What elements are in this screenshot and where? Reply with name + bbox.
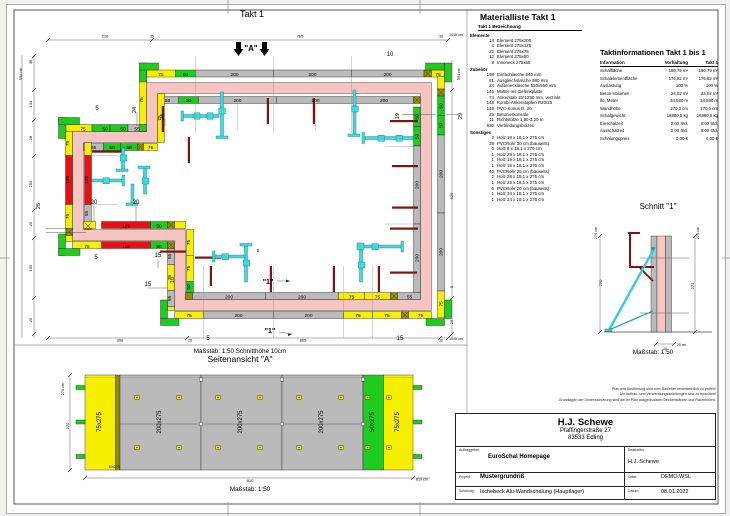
svg-label: 270 — [65, 422, 70, 429]
company-name: H.J. Schewe — [456, 417, 715, 428]
table-row: Schalelementfläche176,82 m²176,82 m² — [600, 75, 718, 83]
svg-label: 810 — [247, 478, 254, 483]
svg-label: 200 — [311, 98, 319, 104]
svg-label: 810 cm — [416, 478, 428, 482]
svg-label: 50 — [109, 145, 115, 151]
svg-label: 5 — [257, 248, 260, 253]
svg-label: 270 cm — [61, 383, 65, 395]
table-row: Einschalzeit0:00 Std.0:00 Std. — [600, 120, 718, 128]
svg-label: 20 — [91, 200, 98, 206]
svg-label: 50 — [183, 72, 189, 78]
field-value-datum: 08.01.2022 — [661, 489, 689, 495]
svg-label: 36 — [29, 60, 33, 64]
svg-label: 50 — [415, 134, 421, 140]
disclaimer-text: Plan und Ausführung sind vom Bauleiter v… — [460, 387, 716, 403]
svg-label: 125 — [65, 176, 71, 184]
field-label-datei: Datei: — [628, 475, 637, 479]
divider — [624, 446, 625, 499]
svg-label: 19 — [395, 113, 401, 119]
svg-label: 5 — [450, 286, 454, 288]
col-takt1: Takt 1 — [688, 60, 718, 65]
svg-label: 134 — [28, 100, 33, 107]
svg-label: 10 — [170, 277, 176, 283]
svg-label: 216 — [102, 34, 109, 39]
svg-label: 50 — [439, 103, 445, 109]
svg-label: "1" — [263, 279, 274, 286]
svg-label: 75 — [435, 72, 441, 78]
schnitt-view: 270 cm270275 cm27525 cm25 — [594, 227, 712, 351]
field-value-bearbeiter: H.J. Schewe — [628, 459, 659, 465]
svg-label: 50 — [126, 145, 132, 151]
material-rows-sonstiges: 2Holz 18 x 18,1 x 275 cm29PVCRohr 30 cm … — [470, 135, 622, 203]
svg-label: 50 — [186, 284, 192, 290]
svg-label: 270 — [598, 279, 603, 286]
svg-label: 15 — [397, 336, 404, 342]
svg-label: 20 — [450, 320, 454, 324]
svg-label: 1045 cm — [449, 33, 463, 37]
svg-label: 20 — [29, 222, 33, 226]
title-block: H.J. Schewe Pfaffingerstraße 27 83533 Ed… — [455, 413, 716, 500]
svg-label: 75 — [439, 301, 445, 307]
svg-label: 5 — [94, 255, 98, 261]
plan-formwork — [59, 63, 452, 326]
svg-label: 75 — [84, 244, 90, 250]
table-row: 1Holz 24 x 18,1 x 275 cm — [470, 197, 622, 203]
takt-info-title: Taktinformationen Takt 1 bis 1 — [600, 48, 718, 57]
table-row: Auslastung100 %100 % — [600, 82, 718, 90]
svg-label: 75 — [65, 141, 71, 147]
svg-label: 29 — [458, 113, 464, 119]
svg-label: 200 — [383, 72, 391, 78]
svg-label: 75 — [186, 313, 192, 319]
svg-label: 75 — [80, 126, 86, 132]
svg-label: 15 — [145, 282, 152, 288]
disclaimer-line: Grundlagen der Dimensionierung sind die … — [460, 398, 716, 403]
svg-label: 200 — [225, 294, 233, 300]
svg-label: 275 cm — [696, 227, 700, 239]
svg-label: 55 — [167, 254, 173, 260]
svg-label: 75 — [384, 313, 390, 319]
svg-label: 50 — [102, 126, 108, 132]
svg-label: 50 — [156, 224, 162, 230]
svg-label: 55 — [167, 296, 173, 302]
svg-label: 125 — [84, 176, 90, 184]
svg-label: 200 — [415, 181, 421, 189]
svg-label: 75 — [349, 294, 355, 300]
svg-label: 25 — [36, 203, 42, 209]
svg-label: 865 — [300, 337, 307, 342]
svg-label: 200 — [439, 248, 445, 256]
svg-label: 55 — [134, 126, 140, 132]
svg-label: 30 — [439, 338, 443, 342]
svg-label: 200x275 — [157, 410, 163, 434]
svg-label: 5 — [95, 106, 99, 112]
table-row: lfd. Meter34,580 m34,580 m — [600, 97, 718, 105]
svg-label: 35 — [150, 35, 154, 39]
svg-label: 50 — [415, 114, 421, 120]
svg-label: 200 — [415, 254, 421, 262]
svg-label: 200x275 — [238, 410, 244, 434]
svg-label: 30 — [439, 35, 443, 39]
svg-label: 200x275 — [319, 410, 325, 434]
table-row: Beton-Volumen24,02 m³24,02 m³ — [600, 90, 718, 98]
wall-ring — [73, 83, 432, 311]
svg-label: 594 cm — [457, 68, 461, 80]
field-value-projekt: Mustergrundriß — [480, 474, 524, 480]
svg-label: 50 — [156, 244, 162, 250]
svg-label: 55 — [407, 294, 413, 300]
company-street: Pfaffingerstraße 27 — [456, 428, 715, 434]
takt-info-table: Taktinformationen Takt 1 bis 1 Informati… — [600, 48, 718, 142]
table-row: Ausschalzeit0:00 Std.0:00 Std. — [600, 127, 718, 135]
takt-info-header: Information Vorhaltung Takt 1 — [600, 60, 718, 67]
material-list-title: Materialliste Takt 1 — [480, 12, 622, 22]
svg-label: 50 — [186, 98, 192, 104]
svg-label: 20 — [29, 318, 33, 322]
svg-label: 55 — [91, 145, 97, 151]
svg-label: 75 — [186, 240, 192, 246]
svg-label: 10 — [387, 52, 394, 58]
svg-label: 200 — [304, 313, 312, 319]
svg-label: 200 — [230, 72, 238, 78]
company-city: 83533 Edling — [456, 435, 715, 441]
svg-label: 75x275 — [395, 411, 401, 431]
svg-label: "A" — [244, 44, 258, 53]
svg-label: 75 — [375, 294, 381, 300]
svg-label: 200 — [298, 294, 306, 300]
svg-label: 200 — [380, 98, 388, 104]
svg-label: 200 — [233, 98, 241, 104]
svg-label: 75 — [355, 313, 361, 319]
svg-label: 275 — [690, 282, 695, 289]
svg-label: 55 — [84, 211, 90, 217]
table-row: Schalgewicht16880,5 kg16880,5 kg — [600, 112, 718, 120]
table-row: Wandhöhe270,0 cm270,0 cm — [600, 105, 718, 113]
col-information: Information — [600, 60, 652, 65]
svg-label: 10x270 — [108, 465, 119, 469]
field-label-auftraggeber: Auftraggeber: — [459, 448, 480, 452]
svg-label: 75 — [148, 145, 154, 151]
svg-label: 75 — [139, 97, 145, 103]
svg-label: 125 — [122, 244, 130, 250]
plan-title: Takt 1 — [222, 9, 282, 19]
svg-label: 594 cm — [19, 68, 23, 80]
svg-label: 20 — [133, 200, 140, 206]
svg-label: 50x275 — [370, 411, 376, 431]
side-view-title: Seitenansicht "A" — [120, 354, 360, 364]
svg-label: 75 — [186, 266, 192, 272]
svg-label: 55 — [165, 98, 171, 104]
svg-label: 5 — [206, 336, 210, 342]
svg-label: "1" — [265, 328, 276, 335]
material-list-header: Takt 1 Bezeichnung — [478, 24, 582, 31]
anchor-x-marks — [66, 70, 445, 319]
svg-label: 25 cm — [677, 343, 686, 347]
field-label-bearbeiter: Bearbeiter — [628, 448, 644, 452]
svg-label: 75 — [65, 214, 71, 220]
svg-label: 28 — [29, 136, 33, 140]
svg-label: 75x275 — [97, 411, 103, 431]
divider — [456, 486, 715, 487]
takt-info-rows: Schalfläche180,79 m²180,79 m²Schalelemen… — [600, 67, 718, 142]
schnitt-title: Schnitt "1" — [598, 202, 718, 211]
svg-label: 765 — [297, 34, 304, 39]
svg-label: 24 — [132, 107, 138, 113]
schnitt-scale: Maßstab: 1:50 — [598, 349, 708, 356]
side-view: 75x275200x275200x275200x27550x27575x2751… — [61, 373, 430, 483]
svg-label: 50 — [120, 126, 126, 132]
table-row: Schalungspreis0,00 €0,00 € — [600, 135, 718, 143]
svg-label: 629 — [449, 192, 454, 199]
svg-label: 255 — [28, 180, 33, 187]
drawing-sheet: 7550200200200755550200200200505020020075… — [0, 0, 730, 516]
field-value-datei: DEMO.WSL — [661, 474, 691, 480]
svg-label: 75 — [158, 72, 164, 78]
field-value-auftraggeber: EuroSchal Homepage — [488, 454, 550, 460]
svg-label: 50 — [439, 123, 445, 129]
field-label-schalung: Schalung: — [459, 489, 475, 493]
svg-label: 308 — [117, 337, 124, 342]
svg-label: 270 cm — [594, 227, 598, 239]
plan-view: 7550200200200755550200200200505020020075… — [19, 33, 464, 342]
col-vorhaltung: Vorhaltung — [652, 60, 688, 65]
table-row: Schalfläche180,79 m²180,79 m² — [600, 67, 718, 75]
svg-label: 1045 cm — [449, 337, 463, 341]
svg-label: 15 — [155, 253, 162, 259]
svg-label: 200 — [439, 170, 445, 178]
svg-label: 75 — [418, 313, 424, 319]
field-label-datum: Datum: — [628, 489, 639, 493]
field-label-projekt: Projekt: — [459, 475, 471, 479]
side-view-scale: Maßstab: 1:50 — [150, 486, 350, 493]
field-value-schalung: Ischebeck Alu-Wandschalung (Hauptlager) — [480, 489, 584, 495]
svg-label: 200 — [234, 313, 242, 319]
divider — [456, 446, 715, 447]
svg-label: 28 — [188, 338, 192, 342]
svg-label: 195 — [28, 264, 33, 271]
svg-label: 24 — [160, 114, 166, 120]
svg-label: 125 — [122, 224, 130, 230]
svg-label: 200 — [308, 72, 316, 78]
